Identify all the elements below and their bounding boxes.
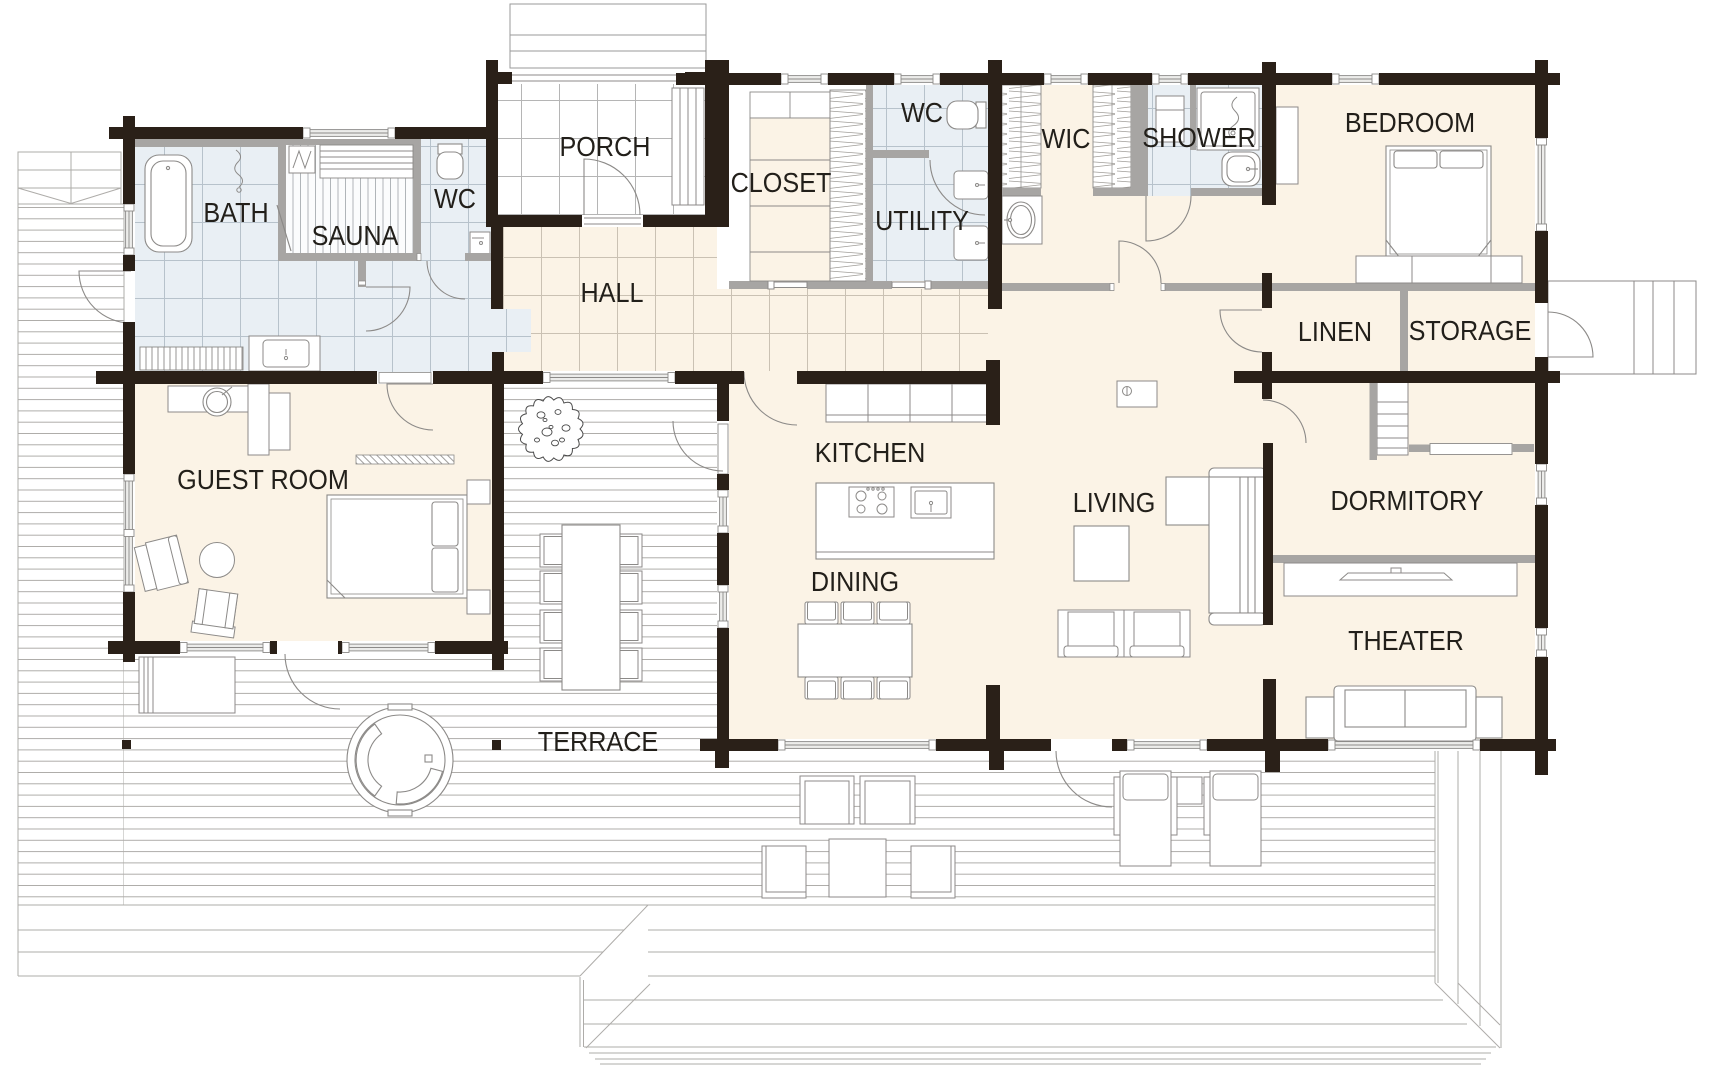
svg-text:SAUNA: SAUNA — [312, 220, 399, 251]
svg-text:STORAGE: STORAGE — [1409, 315, 1532, 346]
svg-text:PORCH: PORCH — [560, 131, 651, 162]
svg-text:DORMITORY: DORMITORY — [1330, 485, 1483, 516]
svg-text:BEDROOM: BEDROOM — [1345, 107, 1475, 138]
svg-text:LIVING: LIVING — [1073, 487, 1156, 518]
svg-text:HALL: HALL — [581, 277, 644, 308]
svg-text:KITCHEN: KITCHEN — [815, 437, 926, 468]
svg-text:DINING: DINING — [811, 566, 899, 597]
svg-text:TERRACE: TERRACE — [538, 726, 658, 757]
svg-text:UTILITY: UTILITY — [875, 205, 969, 236]
svg-text:WC: WC — [901, 97, 943, 128]
svg-text:CLOSET: CLOSET — [731, 167, 832, 198]
svg-text:BATH: BATH — [203, 197, 268, 228]
svg-text:WIC: WIC — [1042, 123, 1091, 154]
svg-text:GUEST ROOM: GUEST ROOM — [177, 464, 349, 495]
svg-text:WC: WC — [434, 183, 476, 214]
svg-text:THEATER: THEATER — [1348, 625, 1464, 656]
svg-text:LINEN: LINEN — [1298, 316, 1372, 347]
svg-text:SHOWER: SHOWER — [1142, 122, 1255, 153]
